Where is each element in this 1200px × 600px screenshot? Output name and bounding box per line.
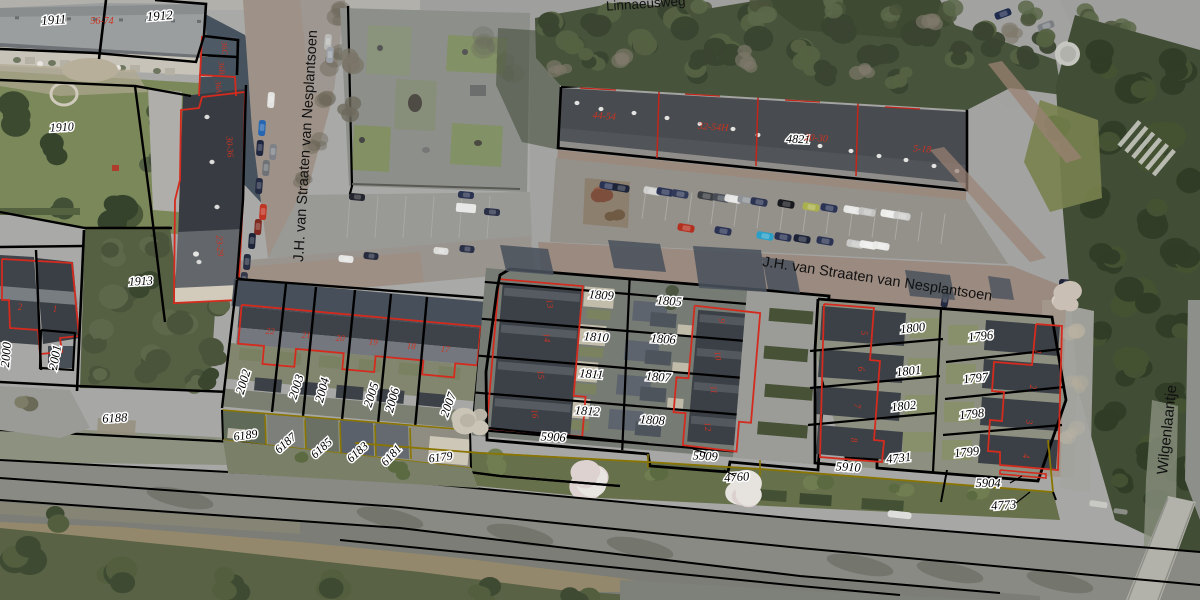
svg-text:1808: 1808 [639,412,666,428]
svg-text:20: 20 [335,333,345,344]
svg-text:22: 22 [265,326,275,337]
svg-text:1913: 1913 [128,273,153,288]
svg-text:1800: 1800 [899,320,926,337]
svg-text:20-30: 20-30 [804,132,828,145]
svg-text:1910: 1910 [49,119,74,134]
svg-text:4731: 4731 [885,450,911,467]
svg-text:5: 5 [859,331,869,336]
svg-text:56-74: 56-74 [90,16,113,27]
svg-text:21: 21 [301,330,311,341]
svg-text:1806: 1806 [650,331,677,347]
svg-text:30-36: 30-36 [224,135,235,158]
svg-text:5910: 5910 [835,459,861,474]
svg-text:44-54: 44-54 [592,110,616,123]
svg-text:17: 17 [440,344,450,355]
svg-text:11: 11 [709,385,720,394]
svg-text:1911: 1911 [41,11,67,28]
svg-text:3: 3 [1024,419,1034,425]
svg-text:36A: 36A [214,79,224,93]
svg-text:1811: 1811 [579,366,604,382]
svg-text:2: 2 [1028,385,1038,390]
svg-text:6188: 6188 [102,410,128,425]
svg-text:1807: 1807 [645,369,672,385]
svg-text:1912: 1912 [146,7,173,24]
svg-text:19: 19 [368,337,378,348]
svg-text:36B: 36B [217,60,227,74]
svg-text:2: 2 [18,302,23,312]
svg-text:1810: 1810 [583,329,610,345]
svg-text:36C: 36C [220,40,230,55]
svg-text:1796: 1796 [967,328,994,345]
svg-text:4: 4 [1021,454,1031,459]
svg-text:2000: 2000 [0,341,14,368]
svg-text:1802: 1802 [890,398,916,415]
svg-text:14: 14 [542,333,553,343]
svg-text:12: 12 [703,422,714,432]
svg-text:1805: 1805 [656,293,682,309]
svg-text:1797: 1797 [962,370,989,387]
svg-text:1: 1 [53,304,58,314]
svg-text:1809: 1809 [588,287,615,303]
svg-text:5909: 5909 [692,448,718,463]
svg-text:32-54H: 32-54H [697,121,730,134]
svg-text:13: 13 [545,299,556,309]
svg-text:18: 18 [406,341,416,352]
svg-text:10: 10 [713,351,724,361]
svg-text:23-29: 23-29 [214,235,225,257]
svg-text:4773: 4773 [991,497,1017,513]
svg-text:1801: 1801 [895,363,921,380]
svg-text:15: 15 [536,370,547,380]
svg-text:1799: 1799 [953,444,980,461]
svg-text:6179: 6179 [428,449,454,466]
svg-text:1812: 1812 [574,403,600,419]
svg-text:5904: 5904 [975,476,1000,490]
svg-text:8: 8 [849,438,859,443]
svg-text:5906: 5906 [540,429,566,444]
svg-text:16: 16 [530,409,541,419]
svg-text:6: 6 [856,367,866,372]
svg-text:5-18: 5-18 [913,143,932,155]
svg-text:1: 1 [1033,350,1043,355]
svg-text:1798: 1798 [958,406,985,423]
svg-text:7: 7 [852,404,862,409]
